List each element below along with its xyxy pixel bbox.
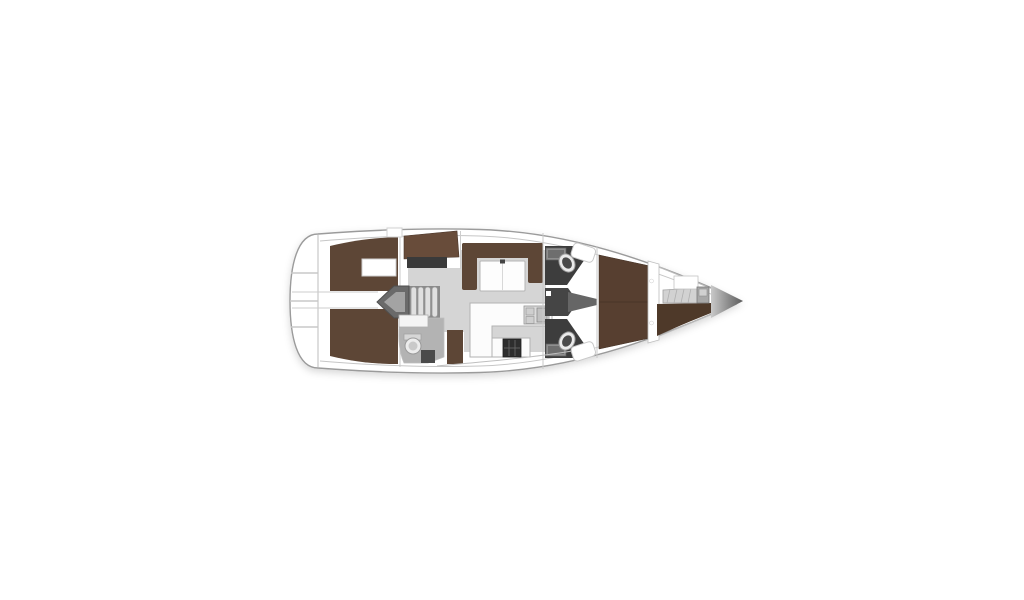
salon-table-notch — [500, 260, 505, 264]
aft-cabin-nightstand — [362, 259, 396, 276]
forward-berth-dot-port — [650, 279, 654, 283]
aft-cabin-starboard-berth — [330, 309, 398, 364]
stair-slat-3 — [425, 287, 431, 317]
bow-windlass-top — [699, 289, 707, 296]
stair-slat-1 — [411, 287, 417, 317]
bow-brown-wedge — [657, 303, 711, 336]
passage-door-handle — [546, 291, 551, 296]
bow-cone — [711, 285, 743, 318]
settee-right-bench — [528, 243, 543, 283]
yacht-floor-plan-page — [0, 0, 1024, 600]
floor-plan-shapes — [290, 228, 743, 373]
aft-head-sink-counter — [399, 315, 428, 327]
stair-slat-2 — [418, 287, 424, 317]
nav-desk — [407, 257, 447, 268]
deck-hatch-aft — [387, 228, 402, 237]
aft-head-shower-grate — [421, 350, 435, 363]
settee-left-bench — [462, 243, 477, 290]
third-cabin-berth — [404, 231, 459, 259]
forward-berth-dot-starboard — [650, 321, 654, 325]
galley-aft-cabinet — [447, 330, 463, 364]
galley-sink-small-1 — [526, 308, 534, 315]
aft-head-toilet-seat — [409, 342, 418, 351]
galley-sink-small-2 — [526, 317, 534, 324]
stair-slat-4 — [432, 287, 438, 317]
floor-plan-svg — [0, 0, 1024, 600]
bow-white-panel — [674, 276, 698, 289]
